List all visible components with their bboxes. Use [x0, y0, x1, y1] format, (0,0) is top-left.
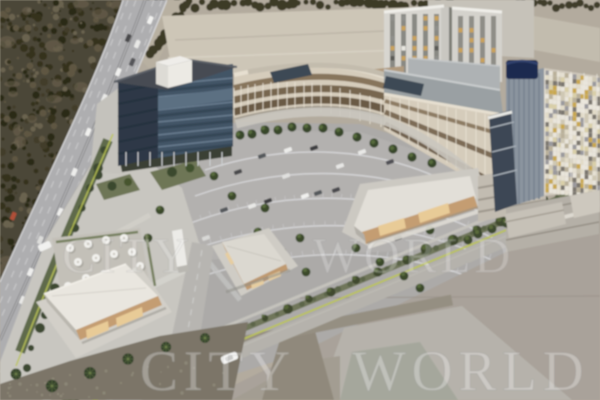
svg-text:CITYWORLD: CITYWORLD: [140, 340, 589, 400]
